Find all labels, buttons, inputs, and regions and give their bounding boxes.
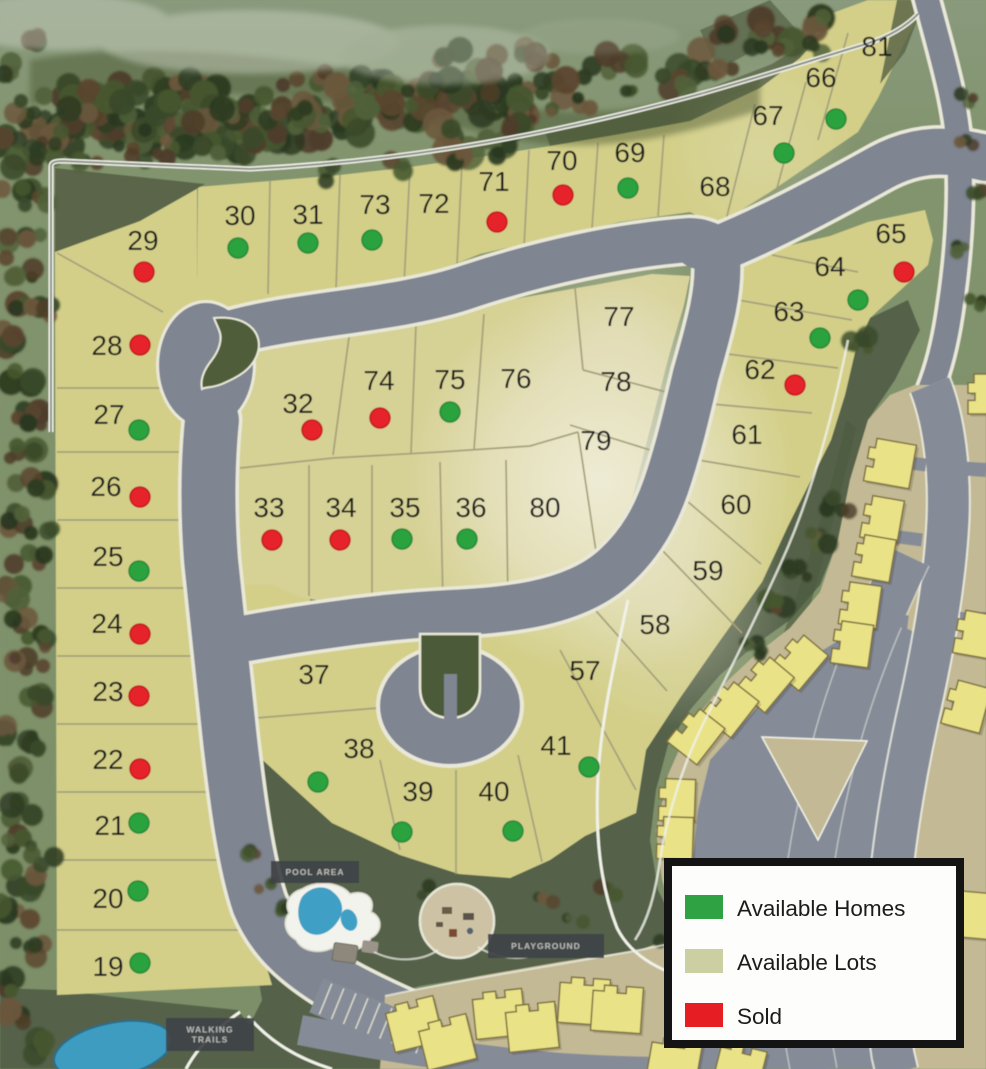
svg-text:66: 66: [805, 62, 836, 93]
svg-text:38: 38: [343, 733, 374, 764]
svg-text:57: 57: [569, 655, 600, 686]
svg-text:25: 25: [92, 541, 123, 572]
svg-text:69: 69: [614, 137, 645, 168]
svg-text:WALKING: WALKING: [186, 1024, 233, 1034]
svg-text:68: 68: [699, 171, 730, 202]
svg-text:22: 22: [92, 744, 123, 775]
svg-text:60: 60: [720, 489, 751, 520]
svg-text:Sold: Sold: [737, 1004, 782, 1029]
svg-text:41: 41: [540, 730, 571, 761]
svg-text:TRAILS: TRAILS: [192, 1035, 229, 1045]
svg-text:Available Homes: Available Homes: [737, 896, 905, 921]
svg-text:40: 40: [478, 776, 509, 807]
svg-text:29: 29: [127, 225, 158, 256]
svg-text:32: 32: [282, 388, 313, 419]
svg-text:27: 27: [93, 399, 124, 430]
svg-text:79: 79: [580, 425, 611, 456]
svg-text:30: 30: [224, 200, 255, 231]
svg-text:33: 33: [253, 492, 284, 523]
svg-text:POOL AREA: POOL AREA: [285, 867, 344, 877]
svg-text:36: 36: [455, 492, 486, 523]
svg-text:76: 76: [500, 363, 531, 394]
svg-text:62: 62: [744, 354, 775, 385]
svg-text:77: 77: [603, 301, 634, 332]
svg-text:58: 58: [639, 609, 670, 640]
svg-text:26: 26: [90, 471, 121, 502]
svg-text:78: 78: [600, 366, 631, 397]
svg-text:73: 73: [359, 189, 390, 220]
svg-text:31: 31: [292, 199, 323, 230]
svg-text:37: 37: [298, 659, 329, 690]
svg-text:71: 71: [478, 166, 509, 197]
svg-text:80: 80: [529, 492, 560, 523]
svg-text:19: 19: [92, 951, 123, 982]
svg-text:34: 34: [325, 492, 356, 523]
svg-text:28: 28: [91, 330, 122, 361]
svg-text:61: 61: [731, 419, 762, 450]
svg-text:81: 81: [861, 31, 892, 62]
svg-text:70: 70: [546, 145, 577, 176]
svg-text:59: 59: [692, 555, 723, 586]
svg-text:20: 20: [92, 883, 123, 914]
svg-text:35: 35: [389, 492, 420, 523]
svg-text:24: 24: [91, 608, 122, 639]
svg-text:39: 39: [402, 776, 433, 807]
svg-text:67: 67: [752, 100, 783, 131]
svg-text:75: 75: [434, 364, 465, 395]
svg-text:65: 65: [875, 218, 906, 249]
svg-text:72: 72: [418, 188, 449, 219]
svg-text:23: 23: [92, 676, 123, 707]
svg-text:21: 21: [94, 810, 125, 841]
svg-text:74: 74: [363, 365, 394, 396]
svg-text:Available Lots: Available Lots: [737, 950, 877, 975]
svg-text:64: 64: [814, 251, 845, 282]
svg-text:PLAYGROUND: PLAYGROUND: [511, 941, 581, 951]
svg-text:63: 63: [773, 296, 804, 327]
